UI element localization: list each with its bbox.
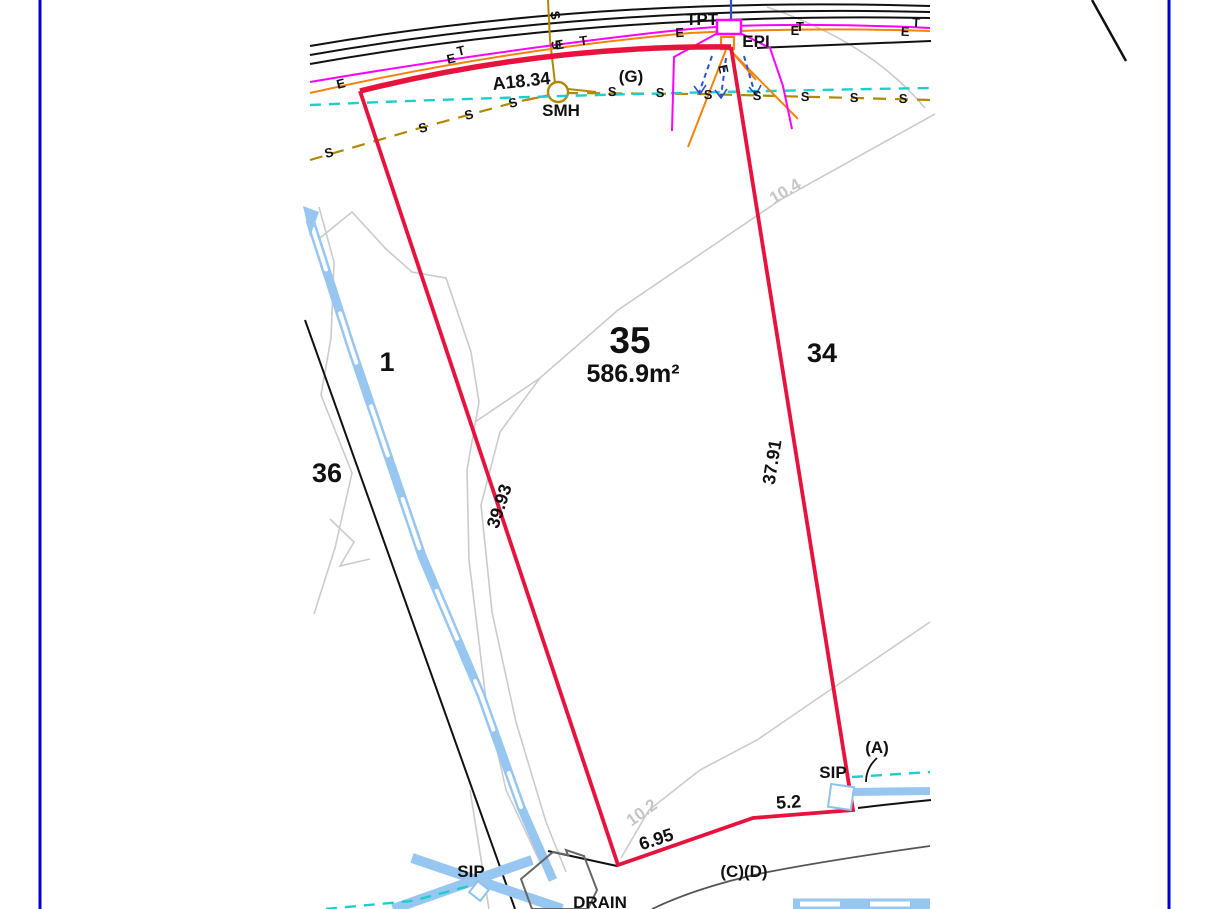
- telecom-marker: T: [796, 19, 804, 34]
- label-drain: DRAIN: [573, 893, 627, 909]
- dim-south-west: 6.95: [636, 824, 676, 854]
- sewer-marker: S: [463, 106, 476, 123]
- sewer-marker: S: [801, 89, 811, 104]
- contour-label-102: 10.2: [623, 795, 661, 830]
- sewer-manhole-symbol: [548, 82, 568, 102]
- sewer-marker: S: [608, 84, 618, 99]
- label-sip-east: SIP: [819, 763, 846, 782]
- electric-marker: E: [445, 50, 457, 67]
- sewer-marker: S: [547, 10, 563, 21]
- sewer-marker: S: [507, 94, 520, 111]
- sewer-marker: S: [753, 88, 763, 103]
- road-lines: [305, 0, 1126, 909]
- dim-south-east: 5.2: [775, 791, 801, 813]
- sewer-marker: S: [899, 91, 909, 106]
- electric-marker: E: [335, 75, 347, 92]
- sewer-marker: S: [656, 85, 666, 100]
- annotation-g: (G): [619, 67, 644, 86]
- telecom-marker: T: [578, 33, 588, 49]
- electric-marker: E: [675, 25, 685, 40]
- label-smh: SMH: [542, 101, 580, 120]
- survey-plan-canvas: 35 586.9m² 1 36 34 A18.34 39.93 37.91 6.…: [0, 0, 1212, 909]
- dim-east-boundary: 37.91: [759, 438, 786, 486]
- service-pit-east-symbol: [828, 784, 854, 810]
- contour-label-104: 10.4: [766, 174, 805, 208]
- electric-marker: E: [715, 63, 732, 75]
- dim-frontage-arc: A18.34: [491, 68, 551, 94]
- electric-marker: E: [554, 36, 565, 52]
- label-epi: EPI: [742, 32, 769, 51]
- annotation-a-leader: [866, 758, 877, 782]
- electric-marker: E: [901, 24, 911, 39]
- sewer-marker: S: [850, 90, 860, 105]
- annotation-a: (A): [865, 738, 889, 757]
- dim-west-boundary: 39.93: [483, 482, 516, 531]
- sewer-marker: S: [704, 87, 714, 102]
- label-tpt: TPT: [686, 10, 719, 29]
- electric-line: [310, 29, 930, 147]
- subject-lot-area: 586.9m²: [586, 360, 679, 388]
- sewer-markers: S S S S S S S S S S S S S: [323, 10, 908, 161]
- adjacent-lot-1: 1: [379, 347, 394, 377]
- telecom-pit-symbol: [717, 20, 741, 34]
- telecom-marker: T: [455, 42, 466, 58]
- sewer-marker: S: [417, 119, 430, 136]
- adjacent-lot-34: 34: [807, 338, 837, 368]
- label-sip-west: SIP: [457, 862, 484, 881]
- subject-lot-number: 35: [609, 320, 650, 361]
- adjacent-lot-36: 36: [312, 458, 342, 488]
- annotation-cd: (C)(D): [720, 862, 767, 881]
- telecom-marker: T: [912, 15, 921, 30]
